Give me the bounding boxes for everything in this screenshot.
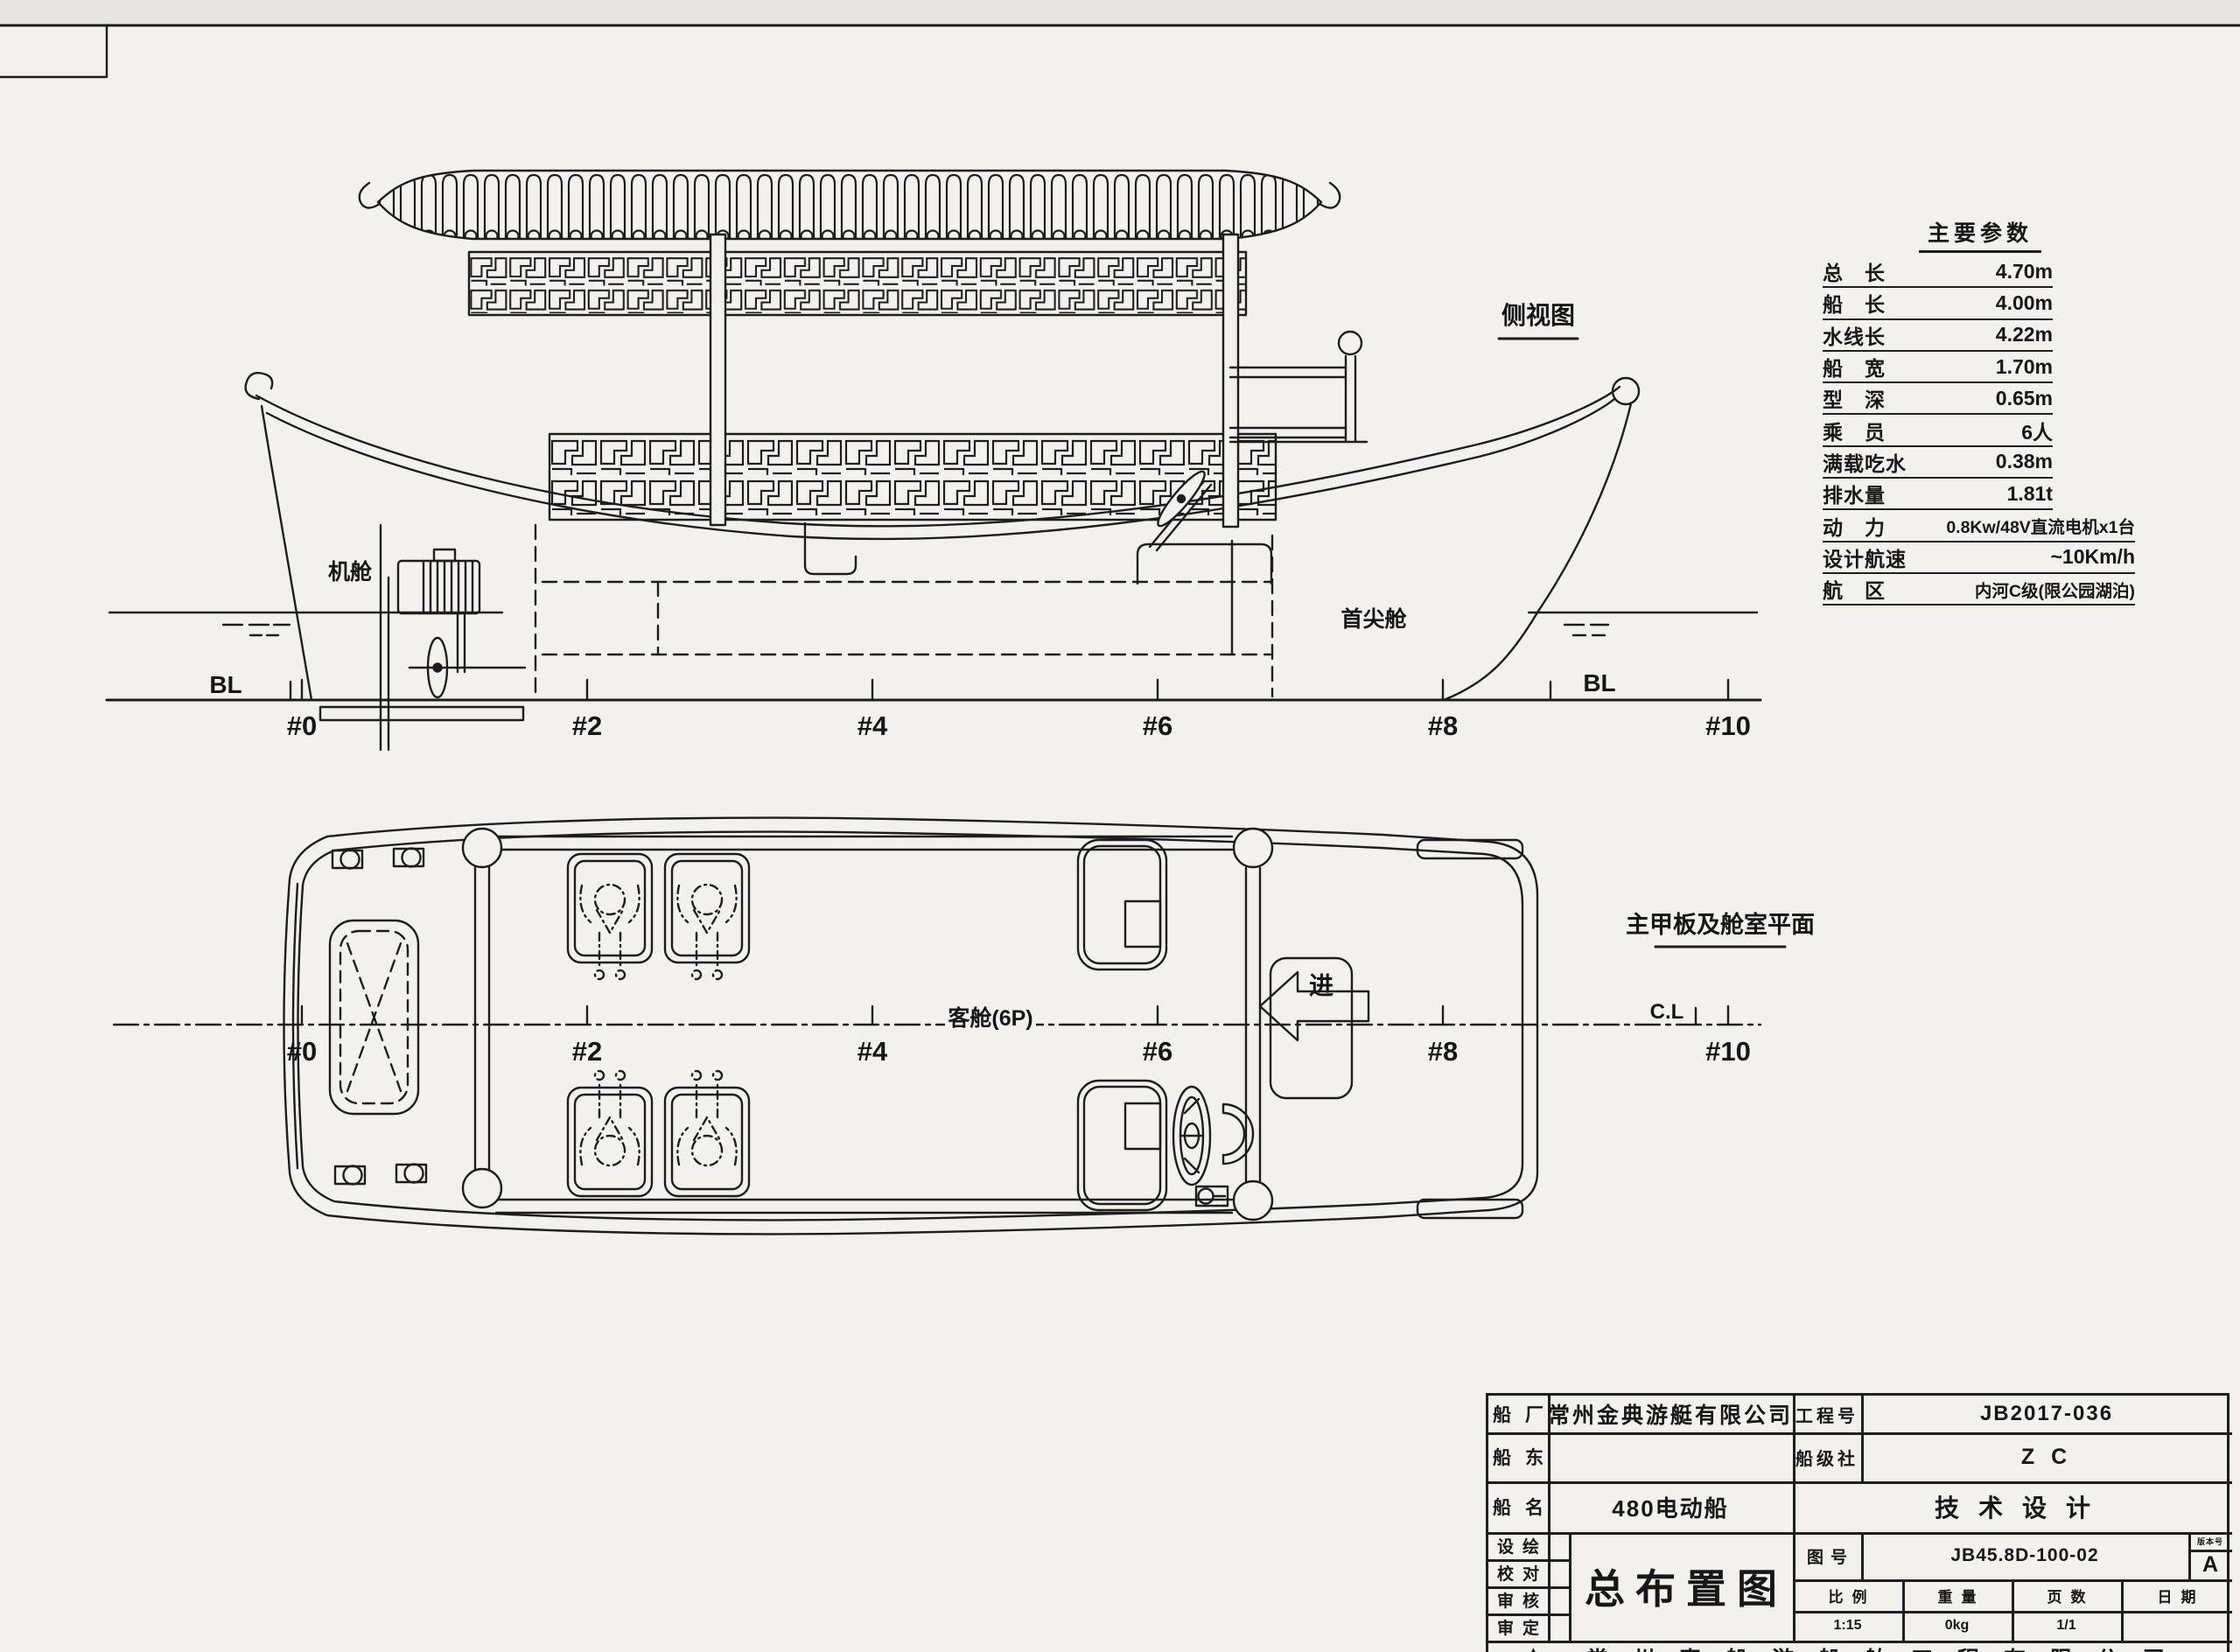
class-society-label: 船级社: [1793, 1432, 1861, 1481]
title-block: 船厂 常州金典游艇有限公司 工程号 JB2017-036 船东 船级社 Z C …: [1486, 1393, 2229, 1652]
stem-head: [1613, 378, 1639, 404]
svg-text:#2: #2: [572, 710, 602, 741]
rudder-stock: [381, 525, 388, 750]
centerline-label: C.L: [1650, 1000, 1684, 1024]
scale-label: 比例: [1793, 1579, 1902, 1611]
bl-label-left: BL: [209, 671, 241, 698]
plan-view: 客舱(6P) 进 C.L 主甲板及舱室平面 #0 #2 #4 #6 #8 #10: [114, 818, 1815, 1235]
drawing-no: JB45.8D-100-02: [1861, 1532, 2188, 1579]
cabin-table-starboard: [1078, 1081, 1166, 1210]
cabin-table-port: [1078, 840, 1166, 969]
param-row: 水线长4.22m: [1823, 320, 2053, 352]
revision-value: A: [2188, 1550, 2232, 1579]
right-eave-curl: [1319, 183, 1340, 208]
svg-text:#2: #2: [572, 1036, 602, 1067]
svg-text:#10: #10: [1705, 1036, 1751, 1067]
stem-curve: [1444, 403, 1631, 700]
pages-value: 1/1: [2012, 1611, 2121, 1641]
shipyard-name: 常州金典游艇有限公司: [1548, 1396, 1793, 1432]
param-row: 动 力0.8Kw/48V直流电机x1台: [1823, 510, 2135, 542]
bow-bench-port: [1417, 840, 1522, 858]
plan-view-title: 主甲板及舱室平面: [1626, 911, 1815, 938]
bl-label-right: BL: [1583, 669, 1615, 696]
post-circle: [463, 829, 501, 867]
param-row: 船 宽1.70m: [1823, 352, 2053, 383]
bow-railing: [1230, 332, 1367, 442]
owner-name: [1548, 1432, 1793, 1481]
canopy-post-left: [710, 234, 725, 525]
stern-curl: [246, 373, 273, 399]
fore-peak-label: 首尖舱: [1340, 606, 1407, 632]
side-view: 侧视图 机舱 首尖舱 BL BL #0 #2 #4 #6 #8 #10: [107, 171, 1760, 750]
stern-edge: [262, 406, 311, 700]
mooring-cleats: [332, 849, 426, 1185]
main-parameters-table: 主要参数 总 长4.70m 船 长4.00m 水线长4.22m 船 宽1.70m…: [1823, 216, 2138, 605]
approve-label: 审定: [1488, 1613, 1548, 1641]
revision-label: 版本号: [2188, 1532, 2232, 1550]
svg-text:#6: #6: [1143, 1036, 1172, 1067]
engine-room-label: 机舱: [328, 559, 373, 584]
weight-label: 重量: [1902, 1579, 2012, 1611]
svg-text:#10: #10: [1705, 710, 1751, 741]
project-no: JB2017-036: [1861, 1396, 2232, 1432]
weight-value: 0kg: [1902, 1611, 2012, 1641]
drawing-title: 总布置图: [1569, 1532, 1793, 1641]
canopy-post-right: [1223, 234, 1238, 527]
svg-text:#8: #8: [1428, 710, 1458, 741]
shipyard-label: 船厂: [1488, 1396, 1548, 1432]
sheet-border: [0, 25, 2240, 77]
pages-label: 页数: [2012, 1579, 2121, 1611]
bl-ticks: [290, 682, 1550, 700]
post-circle: [463, 1169, 501, 1207]
post-circle: [1234, 1181, 1272, 1220]
left-eave-curl: [360, 183, 380, 208]
svg-text:#6: #6: [1143, 710, 1172, 741]
param-row: 满载吃水0.38m: [1823, 447, 2053, 479]
side-station-labels: #0 #2 #4 #6 #8 #10: [287, 710, 1751, 741]
svg-text:#4: #4: [857, 1036, 888, 1067]
param-row: 船 长4.00m: [1823, 288, 2053, 319]
param-row: 排水量1.81t: [1823, 479, 2053, 510]
design-stage: 技术设计: [1793, 1481, 2232, 1532]
ship-name: 480电动船: [1548, 1481, 1793, 1532]
waterline-marks: [109, 612, 1757, 635]
skeg-plate: [320, 707, 523, 720]
footer-bullet-icon: ▲: [1527, 1644, 1540, 1652]
parameters-title: 主要参数: [1823, 216, 2138, 253]
drawing-sheet: 侧视图 机舱 首尖舱 BL BL #0 #2 #4 #6 #8 #10: [0, 0, 2240, 1652]
footer-company: 常州真船游船舶工程有限公司: [1586, 1642, 2189, 1652]
svg-text:#8: #8: [1428, 1036, 1458, 1067]
electric-motor: [320, 525, 525, 750]
hull-profile: [246, 373, 1639, 700]
project-no-label: 工程号: [1793, 1396, 1861, 1432]
scale-value: 1:15: [1793, 1611, 1902, 1641]
upper-lattice-band: [469, 254, 1246, 313]
side-station-ticks: [302, 680, 1728, 700]
date-value: [2121, 1611, 2232, 1641]
param-row: 乘 员6人: [1823, 415, 2053, 446]
param-row: 设计航速~10Km/h: [1823, 542, 2135, 574]
param-row: 总 长4.70m: [1823, 256, 2053, 288]
post-circle: [1234, 829, 1272, 867]
param-row: 型 深0.65m: [1823, 383, 2053, 415]
canopy: [360, 171, 1340, 527]
drawing-no-label: 图号: [1793, 1532, 1861, 1579]
side-view-title: 侧视图: [1501, 302, 1575, 329]
svg-text:#0: #0: [287, 1036, 317, 1067]
check-label: 校对: [1488, 1559, 1548, 1586]
date-label: 日期: [2121, 1579, 2232, 1611]
stern-hatch: [330, 920, 418, 1114]
svg-text:#0: #0: [287, 710, 317, 741]
bow-bench-starboard: [1417, 1200, 1522, 1218]
profile-furniture: [805, 523, 1271, 654]
cabin-label: 客舱(6P): [948, 1005, 1032, 1031]
enter-label: 进: [1309, 972, 1333, 999]
class-society: Z C: [1861, 1432, 2232, 1481]
ship-name-label: 船名: [1488, 1481, 1548, 1532]
review-label: 审核: [1488, 1586, 1548, 1613]
design-draw-label: 设绘: [1488, 1532, 1548, 1559]
internal-dashed-lines: [535, 525, 1272, 698]
param-row: 航 区内河C级(限公园湖泊): [1823, 574, 2135, 605]
owner-label: 船东: [1488, 1432, 1548, 1481]
tile-roof: [378, 171, 1321, 239]
svg-text:#4: #4: [857, 710, 888, 741]
plan-station-labels: #0 #2 #4 #6 #8 #10: [287, 1036, 1751, 1067]
